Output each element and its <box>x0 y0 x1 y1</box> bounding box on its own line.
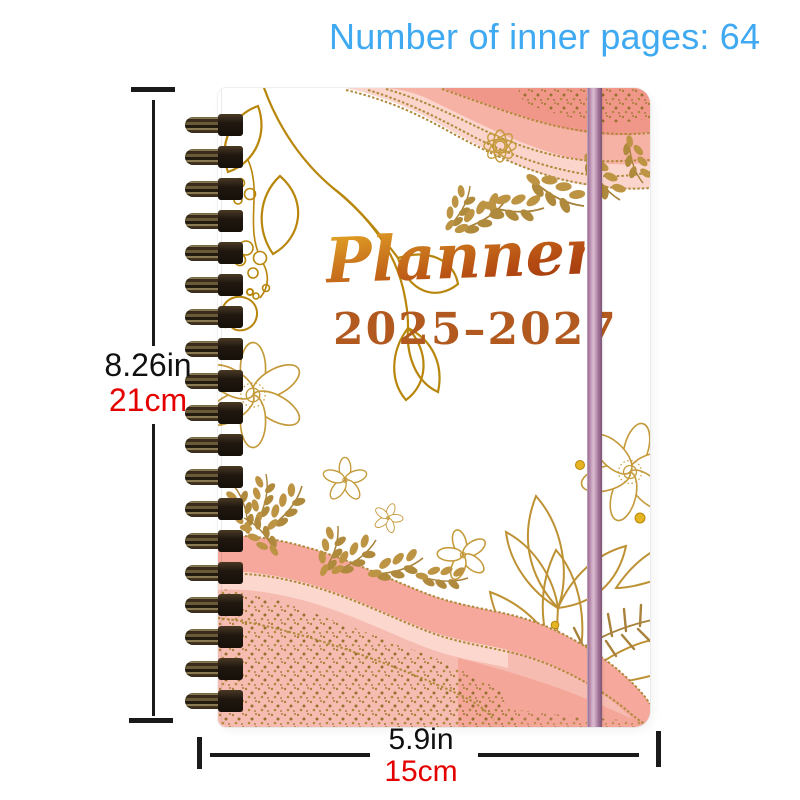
spiral-coil <box>185 562 243 584</box>
planner-title: Planner <box>324 215 586 297</box>
spiral-coil <box>185 594 243 616</box>
height-cm-label: 21cm <box>88 383 208 418</box>
coil-block <box>218 306 243 328</box>
width-dim-label: 5.9in 15cm <box>371 724 471 789</box>
inner-pages-label: Number of inner pages: 64 <box>329 16 760 58</box>
width-cm-label: 15cm <box>371 756 471 788</box>
coil-block <box>218 594 243 616</box>
planner-years: 2025–2027 <box>333 304 593 355</box>
coil-block <box>218 626 243 648</box>
spiral-coil <box>185 242 243 264</box>
coil-block <box>218 274 243 296</box>
width-dim-right-cap <box>656 731 661 767</box>
height-dim-line-lower <box>152 424 155 716</box>
coil-block <box>218 690 243 712</box>
coil-block <box>218 402 243 424</box>
spiral-coil <box>185 434 243 456</box>
elastic-band <box>587 88 602 727</box>
spiral-coil <box>185 178 243 200</box>
coil-block <box>218 530 243 552</box>
coil-block <box>218 658 243 680</box>
cover-artwork <box>218 88 650 727</box>
coil-block <box>218 210 243 232</box>
spiral-coil <box>185 658 243 680</box>
coil-block <box>218 146 243 168</box>
watercolor-bottom-art <box>218 472 650 727</box>
spiral-coil <box>185 306 243 328</box>
spiral-coil <box>185 626 243 648</box>
sakura-art <box>322 457 369 501</box>
coil-block <box>218 338 243 360</box>
height-dim-top-cap <box>131 87 175 92</box>
product-image: Number of inner pages: 64 <box>0 0 800 800</box>
spiral-coil <box>185 210 243 232</box>
sakura-art <box>431 523 495 586</box>
spiral-coil <box>185 274 243 296</box>
spiral-coil <box>185 498 243 520</box>
spiral-coil <box>185 146 243 168</box>
coil-block <box>218 562 243 584</box>
spiral-coil <box>185 690 243 712</box>
coil-block <box>218 114 243 136</box>
width-dim-line-right <box>478 753 639 757</box>
width-inches-label: 5.9in <box>371 724 471 756</box>
spiral-coil <box>185 530 243 552</box>
spiral-coil <box>185 466 243 488</box>
coil-block <box>218 434 243 456</box>
height-dim-line-upper <box>152 100 155 346</box>
spiral-coil <box>185 114 243 136</box>
coil-block <box>218 498 243 520</box>
height-dim-label: 8.26in 21cm <box>88 348 208 417</box>
planner-notebook: Planner 2025–2027 <box>218 88 650 727</box>
width-dim-line-left <box>210 753 370 757</box>
coil-block <box>218 242 243 264</box>
coil-block <box>218 466 243 488</box>
coil-block <box>218 178 243 200</box>
height-dim-bottom-cap <box>129 718 173 723</box>
width-dim-left-cap <box>197 737 202 769</box>
coil-block <box>218 370 243 392</box>
height-inches-label: 8.26in <box>88 348 208 383</box>
sakura-art <box>368 499 407 537</box>
